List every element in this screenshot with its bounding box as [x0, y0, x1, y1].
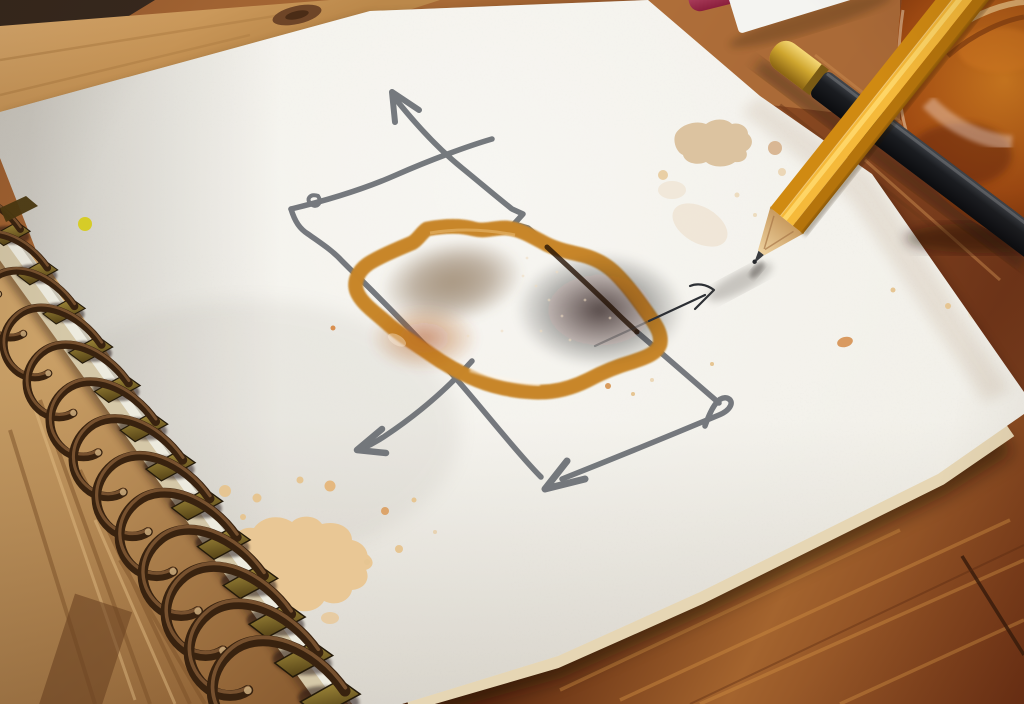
vignette [0, 0, 1024, 704]
photo-scene [0, 0, 1024, 704]
